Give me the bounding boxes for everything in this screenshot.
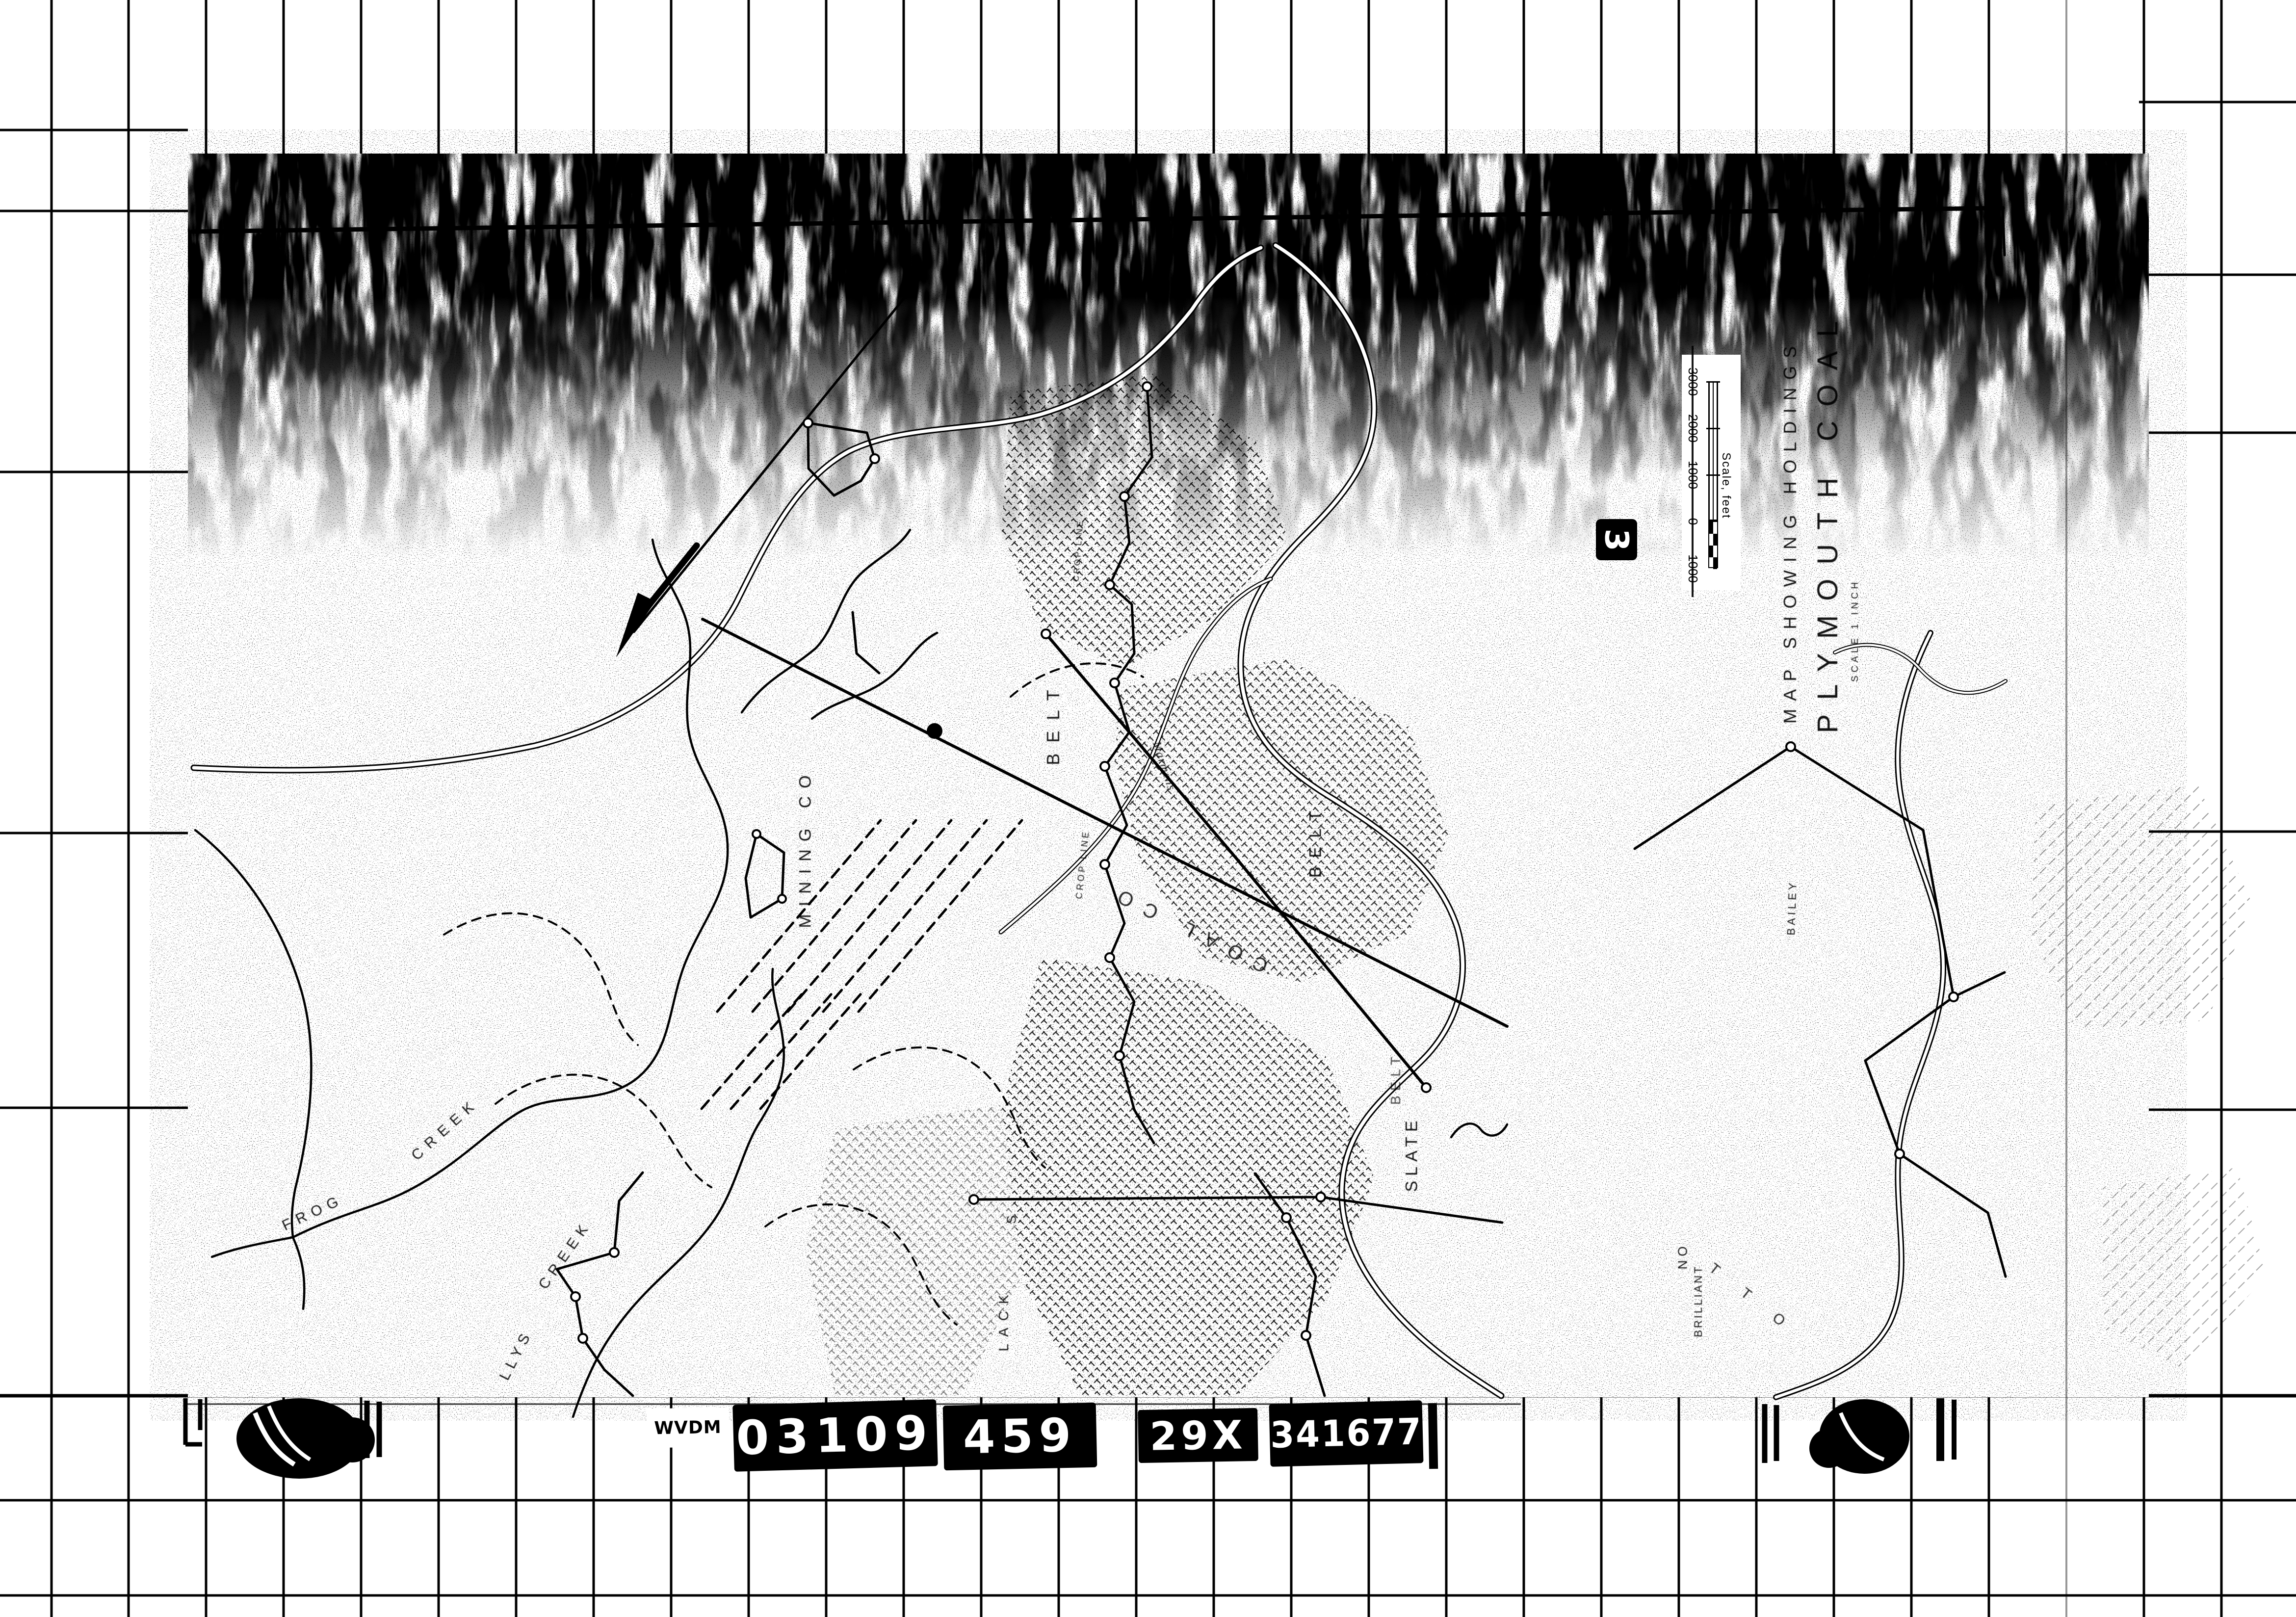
- map-label-brilliant: BRILLIANT: [1692, 1265, 1705, 1337]
- scale-bar-checker: [1708, 521, 1718, 568]
- scale-tick-1000: 1000: [1689, 459, 1700, 491]
- map-label-mining-co: MINING CO: [796, 767, 815, 928]
- film-id-prefix: WVDM: [646, 1408, 729, 1448]
- map-title-scale-note: SCALE 1 INCH: [1850, 537, 1861, 724]
- scale-tick-0: 0: [1689, 506, 1700, 537]
- frame-number-badge: 3: [1596, 519, 1637, 560]
- film-id-end-bar: [1428, 1403, 1438, 1469]
- map-label-belt-a: BELT: [1043, 679, 1064, 765]
- film-id-strip: WVDM 03109 459 29X 341677: [633, 1383, 1467, 1482]
- map-label-belt-c: BELT: [1388, 1052, 1404, 1105]
- map-title-line1: MAP SHOWING HOLDINGS: [1780, 439, 1800, 724]
- map-label-belt-b: BELT: [1306, 802, 1326, 878]
- scale-bar: 3000 2000 1000 0 1000 Scale, feet: [1678, 346, 1751, 601]
- map-title-line2: PLYMOUTH COAL: [1811, 304, 1841, 736]
- scale-tick-2000: 2000: [1689, 413, 1700, 444]
- map-label-bailey: BAILEY: [1785, 880, 1800, 936]
- scale-tick-neg1000: 1000: [1689, 553, 1700, 584]
- film-id-block-4: 341677: [1269, 1400, 1423, 1467]
- microfilm-frame: MAP SHOWING HOLDINGS PLYMOUTH COAL SCALE…: [0, 0, 2296, 1617]
- film-id-block-2: 459: [943, 1403, 1097, 1471]
- map-label-lack: LACK: [996, 1288, 1012, 1351]
- film-id-block-1: 03109: [732, 1399, 938, 1472]
- map-label-lack-s: S: [1004, 1215, 1019, 1224]
- map-label-no: NO: [1675, 1243, 1691, 1270]
- map-label-slate: SLATE: [1403, 1116, 1422, 1192]
- map-artwork: [0, 0, 2296, 1617]
- scale-tick-3000: 3000: [1689, 366, 1700, 397]
- scale-caption: Scale, feet: [1721, 446, 1733, 525]
- frame-number: 3: [1598, 528, 1636, 551]
- film-id-block-3: 29X: [1138, 1408, 1258, 1463]
